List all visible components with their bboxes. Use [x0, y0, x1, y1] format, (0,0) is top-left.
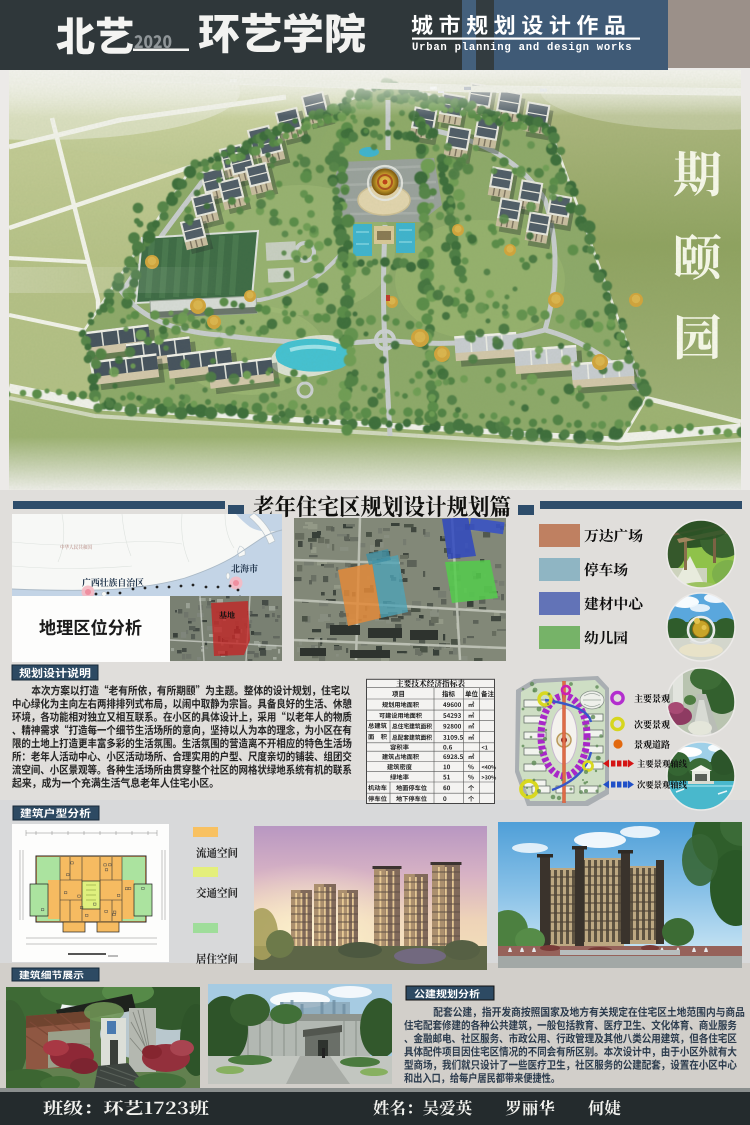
svg-text:Urban planning and design work: Urban planning and design works [412, 42, 632, 54]
